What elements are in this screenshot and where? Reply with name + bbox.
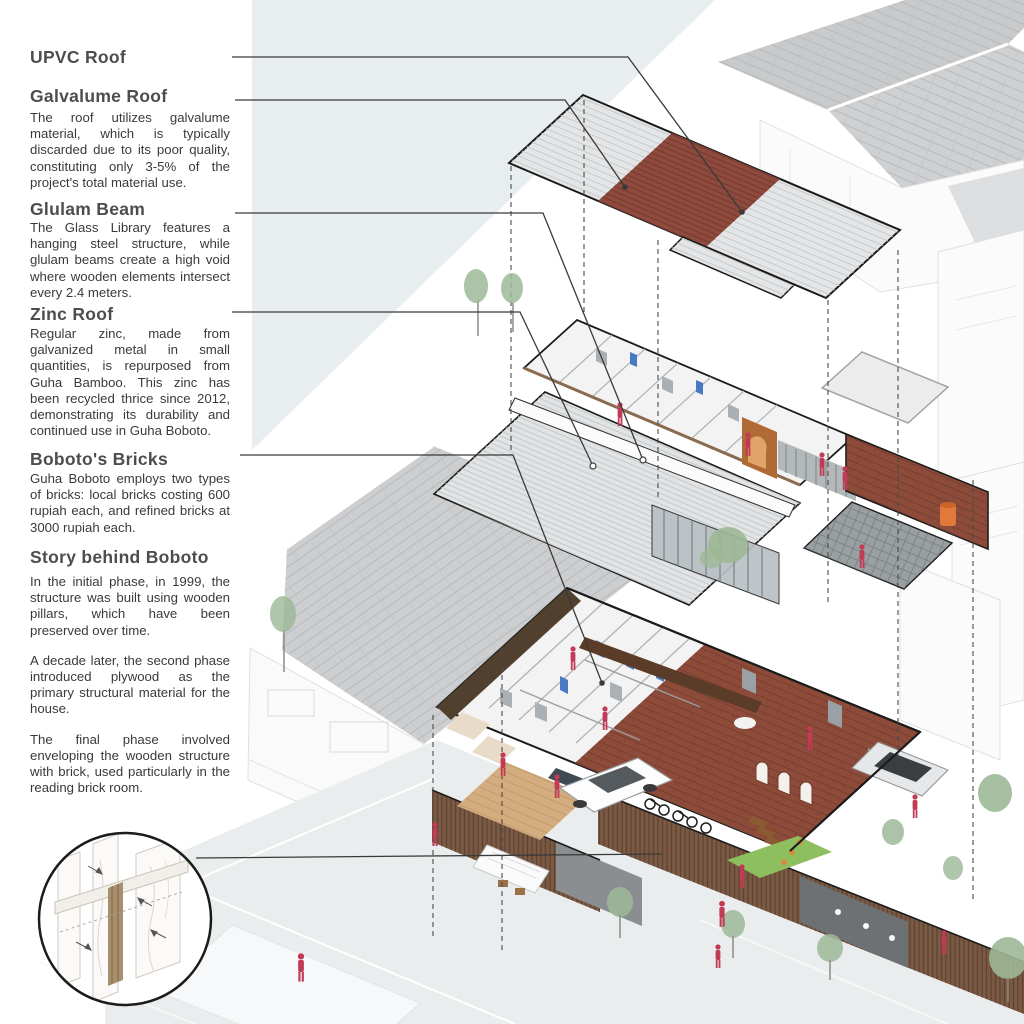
annotation-upvc-roof: UPVC Roof: [30, 47, 230, 71]
water-tank: [940, 502, 956, 526]
annotation-boboto-bricks: Boboto's Bricks Guha Boboto employs two …: [30, 449, 230, 536]
leader-dot: [640, 457, 646, 463]
annotation-story-paragraph-2: A decade later, the second phase introdu…: [30, 653, 230, 718]
leader-dot: [739, 209, 745, 215]
annotation-body-glulam: The Glass Library features a hanging ste…: [30, 220, 230, 301]
leader-dot: [590, 463, 596, 469]
annotation-title-bricks: Boboto's Bricks: [30, 449, 230, 470]
annotation-title-story: Story behind Boboto: [30, 547, 230, 568]
annotation-story: Story behind Boboto In the initial phase…: [30, 547, 230, 796]
annotation-title-glulam: Glulam Beam: [30, 199, 230, 220]
annotation-glulam-beam: Glulam Beam The Glass Library features a…: [30, 199, 230, 301]
poster-canvas: UPVC Roof Galvalume Roof The roof utiliz…: [0, 0, 1024, 1024]
tree: [464, 269, 488, 336]
detail-wood-column: [108, 882, 123, 986]
annotation-body-galvalume: The roof utilizes galvalume material, wh…: [30, 110, 230, 191]
detail-circle-callout: [39, 833, 211, 1005]
figure: [617, 402, 622, 426]
annotation-body-bricks: Guha Boboto employs two types of bricks:…: [30, 471, 230, 536]
tree: [501, 273, 523, 332]
annotation-story-paragraph-3: The final phase involved enveloping the …: [30, 732, 230, 797]
annotation-galvalume-roof: Galvalume Roof The roof utilizes galvalu…: [30, 86, 230, 191]
annotation-title-galvalume: Galvalume Roof: [30, 86, 230, 107]
leader-dot: [599, 680, 605, 686]
figure: [912, 794, 917, 818]
annotation-body-zinc: Regular zinc, made from galvanized metal…: [30, 326, 230, 439]
annotation-title-upvc: UPVC Roof: [30, 47, 230, 68]
leader-dot: [622, 184, 628, 190]
annotation-title-zinc: Zinc Roof: [30, 304, 230, 325]
floating-skylight-panel: [822, 352, 948, 423]
annotation-story-paragraph-1: In the initial phase, in 1999, the struc…: [30, 574, 230, 639]
annotation-zinc-roof: Zinc Roof Regular zinc, made from galvan…: [30, 304, 230, 439]
